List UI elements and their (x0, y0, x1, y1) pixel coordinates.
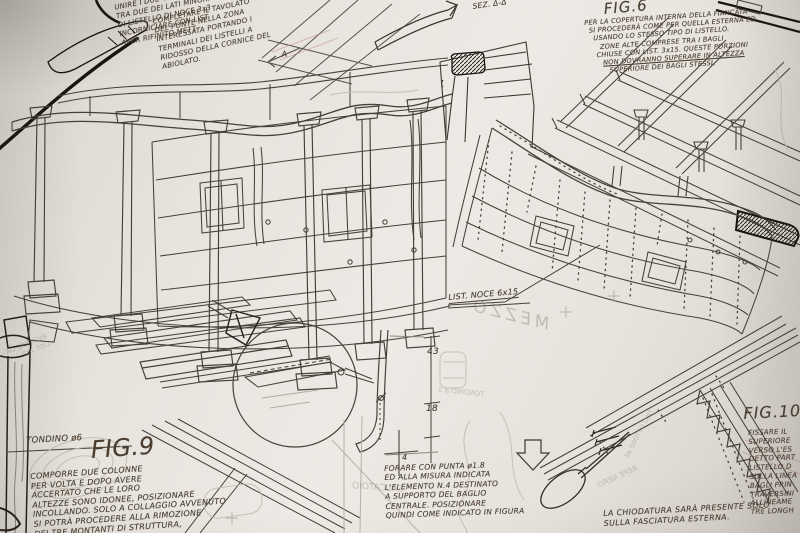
interior-framing-drawing (12, 58, 452, 390)
fig9-note: COMPORRE DUE COLONNE PER VOLTA E DOPO AV… (30, 459, 228, 533)
element-4-label: 4 (402, 453, 407, 462)
fig6-note: PER LA COPERTURA INTERNA DELLA FIANCATA … (584, 7, 759, 76)
fig10-title: FIG.10 (743, 401, 800, 423)
dimension-18: 18 (426, 404, 438, 414)
fig9-title: FIG.9 (90, 432, 155, 464)
plan-photo: CON CARTAVETRO UNIRE I DUE GRIGLIATI INT… (0, 0, 800, 533)
drill-note: FORARE CON PUNTA ø1.8 ED ALLA MISURA IND… (384, 459, 525, 520)
center-detail-drawing (92, 245, 600, 476)
dimension-43: 43 (427, 347, 439, 357)
section-detail (440, 42, 534, 148)
marker-a-label: A (281, 49, 288, 59)
